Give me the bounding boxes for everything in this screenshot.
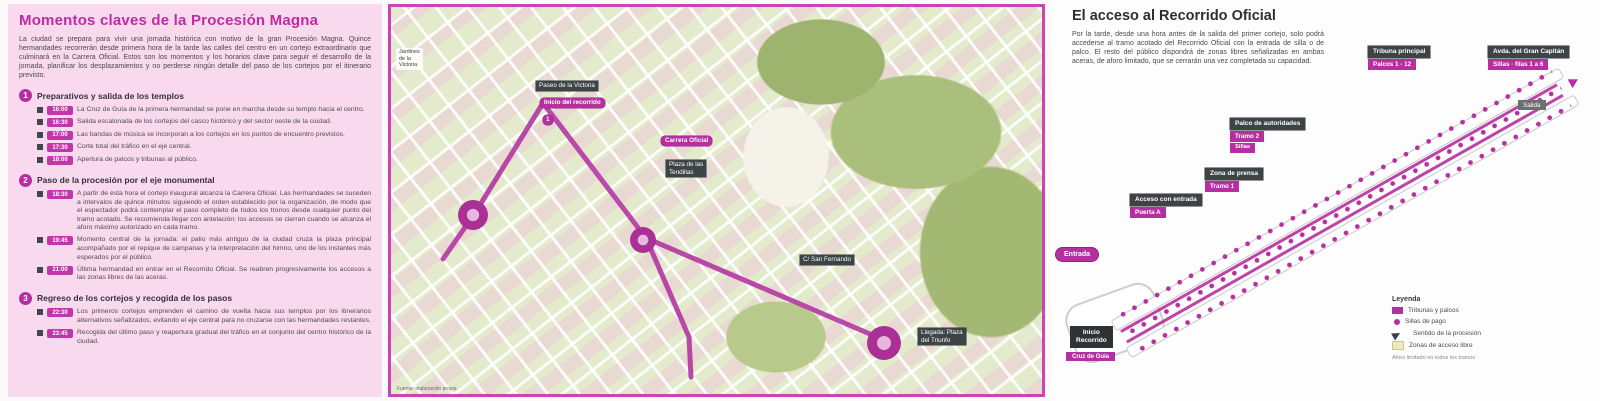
- legend-title: Leyenda: [1392, 296, 1552, 303]
- arrival-label: Llegada: Plaza del Triunfo: [918, 328, 966, 345]
- schedule-item: 21:00 Última hermandad en entrar en el R…: [37, 266, 371, 283]
- right-panel-title: El acceso al Recorrido Oficial: [1072, 8, 1276, 24]
- entry-pill-label: Entrada: [1056, 248, 1098, 261]
- exit-label: Salida: [1518, 100, 1546, 110]
- route-start-label: Inicio del recorrido: [540, 98, 605, 108]
- bullet-square-icon: [37, 157, 43, 163]
- schedule-item: 16:30 Salida escalonada de los cortejos …: [37, 118, 371, 127]
- bullet-square-icon: [37, 267, 43, 273]
- schedule-item: 17:30 Corte total del tráfico en el eje …: [37, 143, 371, 152]
- route-node-icon: [458, 200, 488, 230]
- diagram-label-authorities: Palco de autoridades Tramo 2 Sillas: [1230, 112, 1305, 153]
- section-number-badge: 3: [19, 292, 32, 305]
- tribune-swatch-icon: [1392, 307, 1403, 314]
- time-badge: 17:30: [47, 143, 73, 152]
- route-node-icon: [867, 326, 901, 360]
- legend: Leyenda Tribunas y palcos Sillas de pago…: [1392, 296, 1552, 361]
- schedule-item: 17:00 Las bandas de música se incorporan…: [37, 131, 371, 140]
- section-heading: Paso de la procesión por el eje monument…: [37, 175, 215, 185]
- left-panel-title: Momentos claves de la Procesión Magna: [19, 12, 371, 29]
- schedule-item: 19:45 Momento central de la jornada: el …: [37, 236, 371, 262]
- route-map: Jardines de la Victoria Paseo de la Vict…: [388, 4, 1045, 397]
- right-panel-intro: Por la tarde, desde una hora antes de la…: [1072, 30, 1324, 66]
- legend-item: Sentido de la procesión: [1392, 329, 1552, 337]
- legend-item: Zonas de acceso libre: [1392, 341, 1552, 350]
- bullet-square-icon: [37, 309, 43, 315]
- diagram-label-press: Zona de prensa Tramo 1: [1205, 162, 1263, 192]
- official-route-access-panel: El acceso al Recorrido Oficial Por la ta…: [1050, 0, 1600, 401]
- section-2: 2 Paso de la procesión por el eje monume…: [19, 174, 371, 283]
- diagram-label-tribune: Tribuna principal Palcos 1 - 12: [1368, 40, 1430, 70]
- section-1: 1 Preparativos y salida de los templos 1…: [19, 89, 371, 165]
- schedule-item: 22:30 Los primeros cortejos emprenden el…: [37, 308, 371, 325]
- route-start-box: Inicio Recorrido: [1070, 326, 1113, 348]
- left-panel-intro: La ciudad se prepara para vivir una jorn…: [19, 35, 371, 80]
- time-badge: 18:00: [47, 156, 73, 165]
- direction-arrow-icon: [1391, 326, 1409, 341]
- street-name-label: C/ San Fernando: [800, 255, 854, 265]
- schedule-item: 18:30 A partir de esta hora el cortejo i…: [37, 190, 371, 233]
- direction-arrow-icon: [1568, 75, 1581, 88]
- section-3: 3 Regreso de los cortejos y recogida de …: [19, 292, 371, 346]
- route-tag-badge: 1: [543, 115, 553, 125]
- diagram-label-access: Acceso con entrada Puerta A: [1130, 188, 1202, 218]
- bullet-square-icon: [37, 144, 43, 150]
- time-badge: 16:30: [47, 118, 73, 127]
- schedule-item: 16:00 La Cruz de Guía de la primera herm…: [37, 106, 371, 115]
- time-badge: 19:45: [47, 236, 73, 245]
- time-badge: 22:30: [47, 308, 73, 317]
- time-badge: 17:00: [47, 131, 73, 140]
- legend-note: Aforo limitado en todos los tramos: [1392, 355, 1552, 361]
- section-number-badge: 1: [19, 89, 32, 102]
- section-number-badge: 2: [19, 174, 32, 187]
- route-node-icon: [630, 227, 656, 253]
- street-name-label: Paseo de la Victoria: [536, 81, 598, 91]
- time-badge: 18:30: [47, 190, 73, 199]
- key-moments-panel: Momentos claves de la Procesión Magna La…: [8, 4, 382, 397]
- cross-guide-label: Cruz de Guía: [1066, 352, 1115, 361]
- bullet-square-icon: [37, 107, 43, 113]
- bullet-square-icon: [37, 191, 43, 197]
- time-badge: 16:00: [47, 106, 73, 115]
- map-credit: Fuente: elaboración propia: [397, 386, 457, 392]
- bullet-square-icon: [37, 330, 43, 336]
- bullet-square-icon: [37, 119, 43, 125]
- official-route-label: Carrera Oficial: [661, 136, 712, 146]
- section-heading: Preparativos y salida de los templos: [37, 91, 184, 101]
- chair-dot-icon: [1394, 319, 1400, 325]
- bullet-square-icon: [37, 132, 43, 138]
- diagram-label-avenue: Avda. del Gran Capitán Sillas · filas 1 …: [1488, 40, 1569, 70]
- plaza-label: Plaza de las Tendillas: [666, 160, 706, 177]
- time-badge: 21:00: [47, 266, 73, 275]
- legend-item: Sillas de pago: [1392, 318, 1552, 325]
- section-heading: Regreso de los cortejos y recogida de lo…: [37, 293, 232, 303]
- time-badge: 23:45: [47, 329, 73, 338]
- schedule-item: 18:00 Apertura de palcos y tribunas al p…: [37, 156, 371, 165]
- park-label: Jardines de la Victoria: [396, 48, 423, 70]
- bullet-square-icon: [37, 237, 43, 243]
- legend-item: Tribunas y palcos: [1392, 307, 1552, 314]
- schedule-item: 23:45 Recogida del último paso y reapert…: [37, 329, 371, 346]
- free-zone-swatch-icon: [1392, 341, 1404, 350]
